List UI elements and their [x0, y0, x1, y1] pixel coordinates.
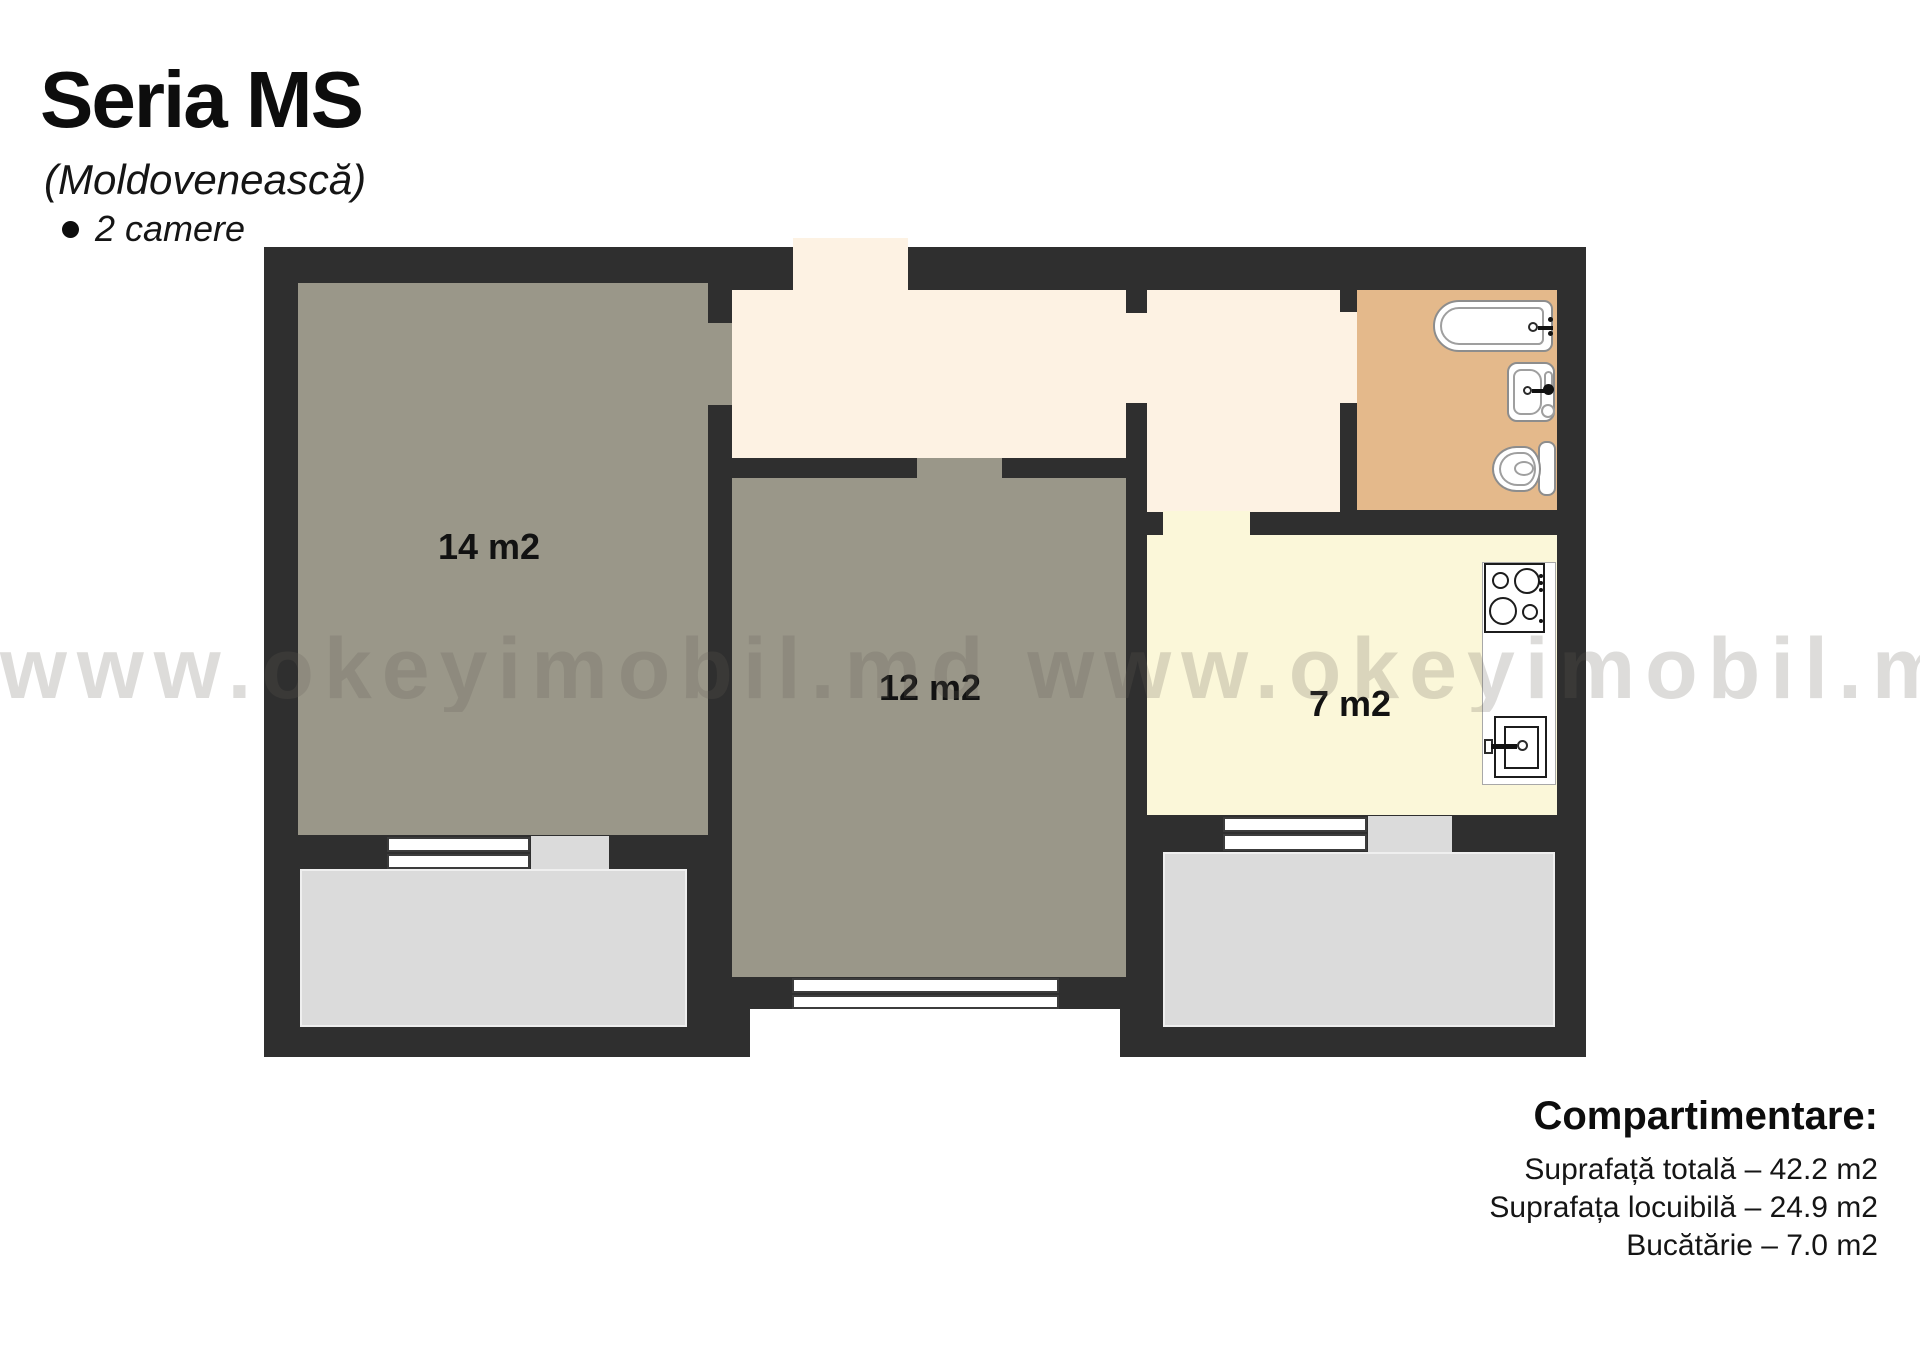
- balcony-right: [1163, 852, 1555, 1027]
- window-kitchen: [1223, 817, 1367, 832]
- kitchen-sink-faucet-icon: [1517, 740, 1528, 751]
- window-room12: [792, 978, 1059, 993]
- bathtub-faucet-icon: [1538, 326, 1553, 330]
- balcony-door-left: [531, 836, 609, 869]
- stove-icon: [1492, 572, 1509, 589]
- stove-icon: [1539, 619, 1543, 623]
- balcony-door-right: [1368, 816, 1452, 852]
- kitchen-sink-faucet-icon: [1491, 744, 1517, 749]
- legend-heading: Compartimentare:: [1489, 1094, 1878, 1139]
- legend-line: Suprafața locuibilă – 24.9 m2: [1489, 1189, 1878, 1227]
- toilet-icon: [1514, 461, 1534, 476]
- bathtub-faucet-icon: [1548, 317, 1553, 322]
- bathroom-sink-faucet-icon: [1543, 384, 1554, 395]
- window-room14: [387, 854, 530, 869]
- door-room14-hall: [708, 323, 732, 405]
- legend: Compartimentare: Suprafață totală – 42.2…: [1489, 1094, 1878, 1265]
- legend-line: Bucătărie – 7.0 m2: [1489, 1227, 1878, 1265]
- door-room12-hall: [917, 458, 1002, 482]
- bathtub-faucet-icon: [1548, 331, 1553, 336]
- floor-plan-poster: Seria MS (Moldovenească) 2 camere: [0, 0, 1920, 1358]
- room-area-label: 7 m2: [1309, 683, 1391, 725]
- legend-line: Suprafață totală – 42.2 m2: [1489, 1151, 1878, 1189]
- window-room12: [792, 995, 1059, 1009]
- hallway-side: [1147, 290, 1340, 512]
- bathroom-sink-faucet-icon: [1523, 386, 1532, 395]
- door-bathroom: [1340, 312, 1357, 403]
- stove-icon: [1539, 581, 1543, 585]
- entrance-notch: [793, 238, 908, 294]
- stove-icon: [1539, 588, 1543, 592]
- room-area-label: 14 m2: [438, 526, 540, 568]
- door-hall-hall: [1126, 313, 1147, 403]
- window-kitchen: [1223, 834, 1367, 851]
- door-kitchen: [1163, 511, 1250, 537]
- room-living-12: [732, 478, 1126, 977]
- stove-icon: [1489, 597, 1517, 625]
- bathroom-sink-icon: [1541, 404, 1555, 418]
- room-area-label: 12 m2: [879, 667, 981, 709]
- bathtub-faucet-icon: [1528, 322, 1538, 332]
- exterior-cutout: [750, 1009, 1120, 1057]
- stove-icon: [1522, 604, 1538, 620]
- balcony-left: [300, 869, 687, 1027]
- stove-icon: [1539, 574, 1543, 578]
- hallway-main: [732, 290, 1126, 458]
- window-room14: [387, 837, 530, 852]
- stove-icon: [1514, 568, 1540, 594]
